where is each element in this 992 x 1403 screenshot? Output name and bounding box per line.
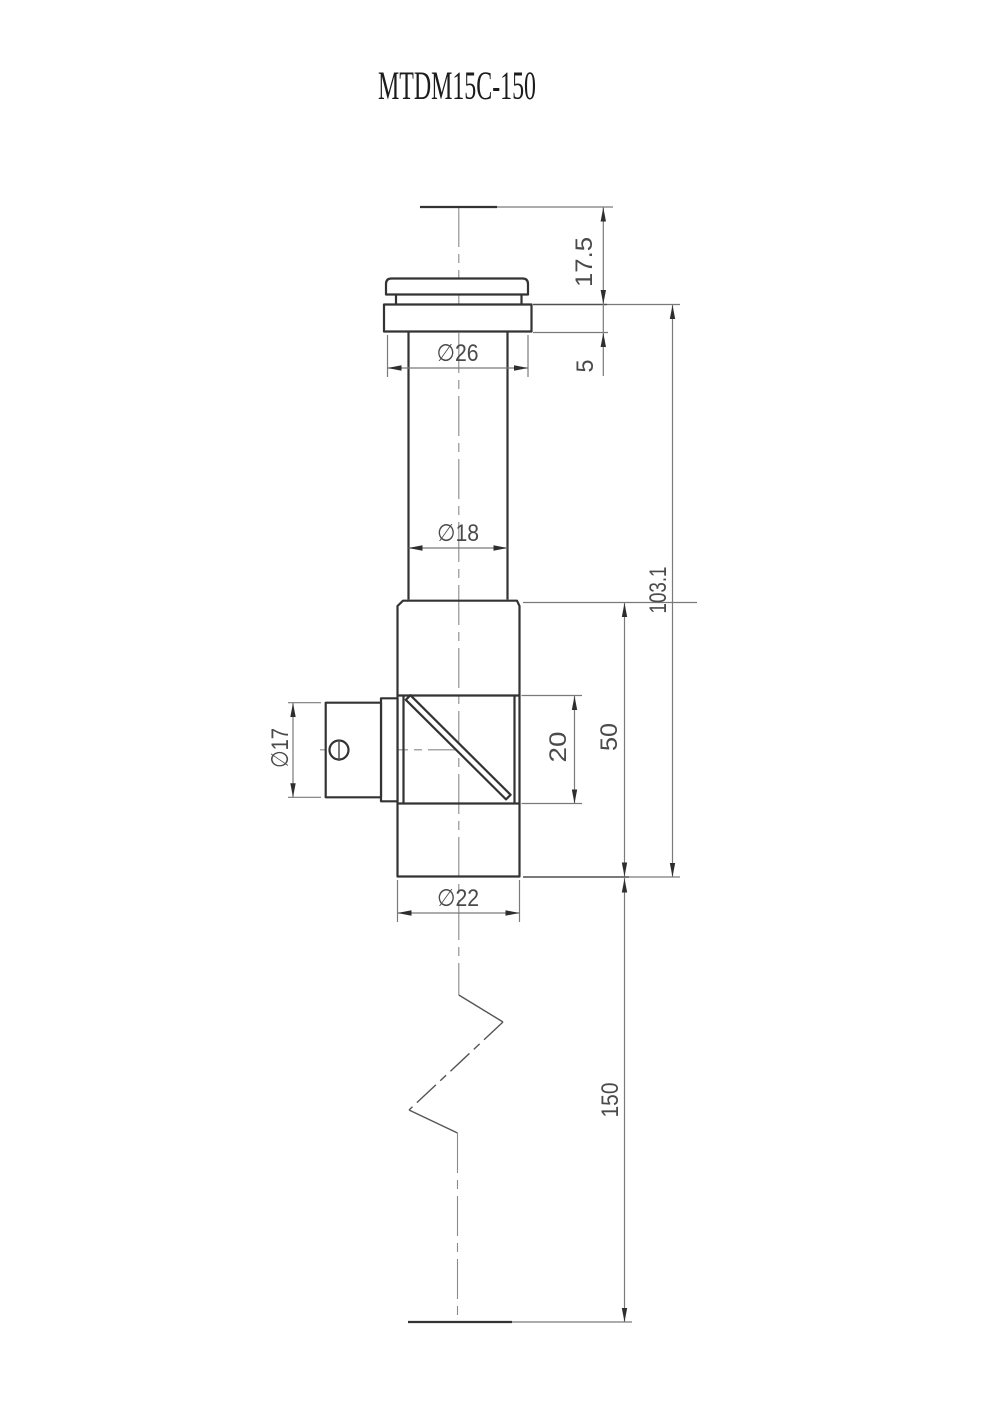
dim-d17-arrow-bottom bbox=[290, 783, 295, 797]
dim-d22-arrow-left bbox=[398, 910, 412, 915]
dim-103p1-arrow-bottom bbox=[670, 863, 675, 877]
dim-150-label: 150 bbox=[597, 1083, 624, 1118]
dim-d26-label: ∅26 bbox=[437, 340, 479, 367]
dim-103p1-label: 103.1 bbox=[645, 567, 672, 614]
dim-103p1-arrow-top bbox=[670, 305, 675, 319]
dim-d18: ∅18 bbox=[409, 520, 508, 551]
technical-drawing: 17.5 5 103.1 ∅26 ∅18 20 bbox=[0, 0, 992, 1403]
cap bbox=[386, 279, 528, 295]
break-symbol bbox=[409, 995, 503, 1133]
extension-lines bbox=[497, 207, 697, 1322]
dim-d26-arrow-right bbox=[514, 365, 528, 370]
dim-150-arrow-bottom bbox=[622, 1308, 627, 1322]
dim-150: 150 bbox=[597, 877, 627, 1322]
dim-50: 50 bbox=[596, 603, 627, 877]
dim-5-label: 5 bbox=[572, 360, 599, 373]
break-zig-upper bbox=[459, 995, 503, 1022]
break-zig-lower bbox=[409, 1110, 458, 1133]
port-body bbox=[326, 703, 381, 798]
port-neck bbox=[381, 698, 398, 801]
dim-20: 20 bbox=[522, 696, 583, 804]
dim-50-arrow-bottom bbox=[622, 863, 627, 877]
flange bbox=[384, 305, 532, 332]
drawing-title: MTDM15C-150 bbox=[378, 63, 536, 108]
dim-5-arrow bbox=[601, 333, 606, 347]
drawing-page: 17.5 5 103.1 ∅26 ∅18 20 bbox=[0, 0, 992, 1403]
dim-d17-arrow-top bbox=[290, 703, 295, 717]
dim-d17-label: ∅17 bbox=[267, 728, 294, 768]
dim-20-label: 20 bbox=[545, 732, 572, 763]
dim-103p1: 103.1 bbox=[645, 305, 675, 878]
dim-d22-arrow-right bbox=[506, 910, 520, 915]
dim-d18-arrow-right bbox=[494, 545, 508, 550]
dim-20-arrow-bottom bbox=[572, 790, 577, 804]
part-outline bbox=[326, 207, 532, 1322]
dim-17p5-arrow-bottom bbox=[601, 290, 606, 304]
dim-5: 5 bbox=[572, 305, 606, 377]
dim-50-arrow-top bbox=[622, 603, 627, 617]
dim-50-label: 50 bbox=[596, 723, 623, 751]
break-diagonal bbox=[409, 1022, 503, 1110]
dim-17p5-arrow-top bbox=[601, 208, 606, 222]
dim-d18-label: ∅18 bbox=[437, 520, 479, 547]
dim-150-arrow-top bbox=[622, 879, 627, 893]
dim-d22-label: ∅22 bbox=[437, 885, 479, 912]
dim-d18-arrow-left bbox=[409, 545, 423, 550]
dim-20-arrow-top bbox=[572, 696, 577, 710]
dim-17p5: 17.5 bbox=[571, 207, 606, 305]
mirror-plate bbox=[406, 695, 511, 799]
dim-17p5-label: 17.5 bbox=[571, 237, 598, 287]
dim-d17: ∅17 bbox=[267, 703, 321, 798]
dim-d26-arrow-left bbox=[388, 365, 402, 370]
